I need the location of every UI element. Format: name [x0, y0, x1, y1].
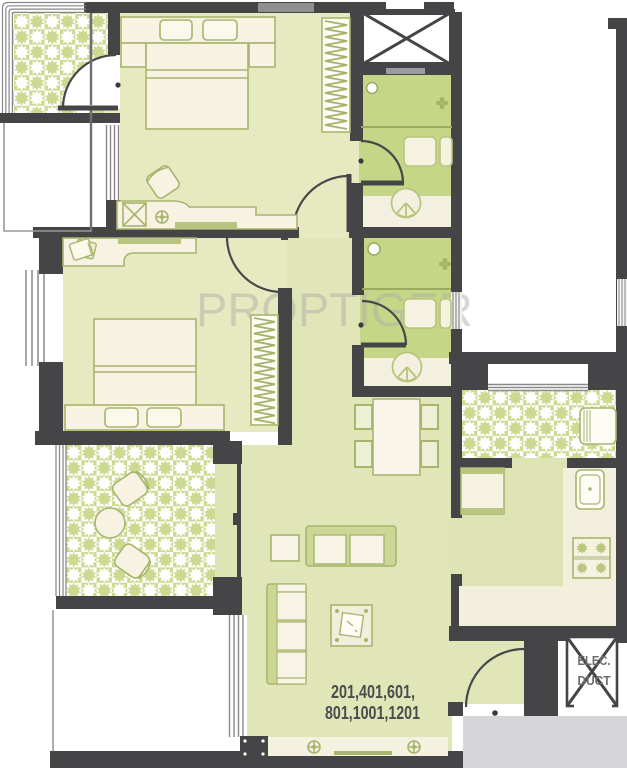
- svg-text:ELEC.: ELEC.: [578, 653, 611, 668]
- svg-text:DUCT: DUCT: [578, 673, 611, 688]
- svg-text:801,1001,1201: 801,1001,1201: [325, 702, 420, 723]
- svg-text:201,401,601,: 201,401,601,: [331, 681, 415, 702]
